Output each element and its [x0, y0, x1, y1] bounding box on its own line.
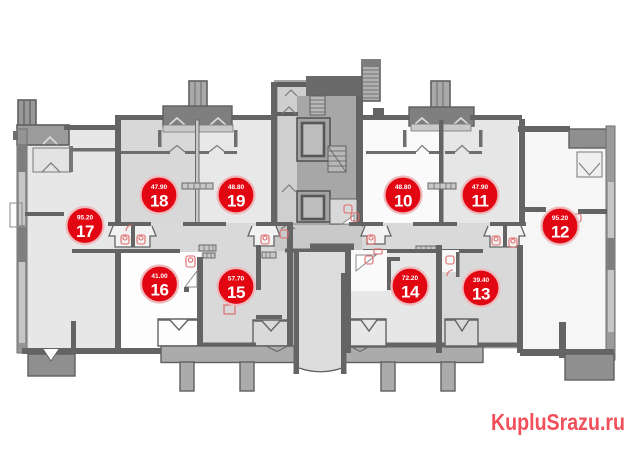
svg-text:39.40: 39.40 [473, 277, 490, 284]
svg-text:KupluSrazu.ru: KupluSrazu.ru [491, 409, 625, 435]
svg-text:17: 17 [76, 222, 94, 241]
svg-text:16: 16 [151, 281, 169, 300]
svg-text:10: 10 [394, 192, 412, 211]
svg-text:18: 18 [150, 192, 168, 211]
svg-text:48.80: 48.80 [395, 184, 412, 191]
svg-text:47.90: 47.90 [151, 184, 168, 191]
svg-text:14: 14 [401, 283, 420, 302]
svg-text:11: 11 [472, 192, 489, 211]
svg-text:19: 19 [227, 192, 245, 211]
svg-text:48.80: 48.80 [228, 184, 245, 191]
svg-text:72.20: 72.20 [402, 275, 419, 282]
svg-text:47.90: 47.90 [472, 184, 489, 191]
svg-text:41.00: 41.00 [151, 273, 168, 280]
svg-text:13: 13 [472, 285, 490, 304]
svg-text:95.20: 95.20 [552, 215, 569, 222]
svg-text:57.70: 57.70 [228, 276, 245, 283]
svg-text:95.20: 95.20 [77, 215, 94, 222]
svg-text:15: 15 [227, 283, 245, 302]
svg-text:12: 12 [551, 223, 569, 242]
